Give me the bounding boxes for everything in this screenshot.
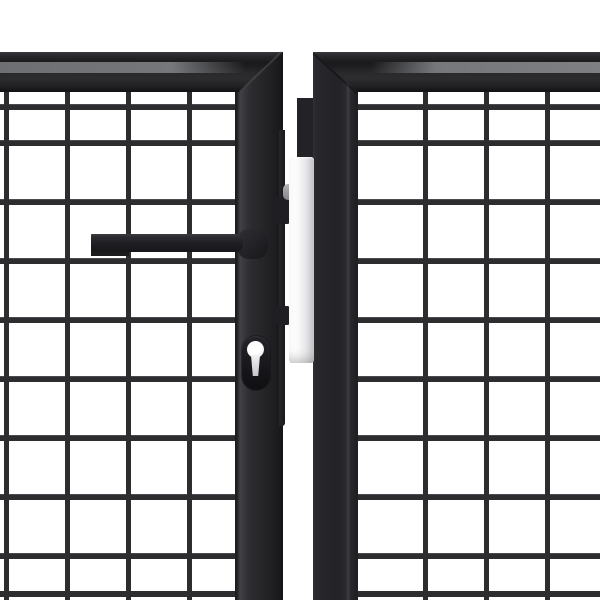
top-rail-highlight-left [0,62,246,73]
bottom-double-wire-right [358,591,600,597]
bottom-double-wire-left [0,591,235,597]
top-rail-right [313,52,600,92]
right-gate-stile [313,52,358,600]
strike-plate [289,157,314,363]
lever-handle [91,234,243,252]
strike-mount-block [297,98,313,159]
wire-mesh-right [358,92,600,600]
left-gate-stile [235,52,283,600]
wire-mesh-left [0,92,235,600]
product-photo [0,0,600,600]
lock-case-edge [279,130,285,426]
top-rail-left [0,52,282,92]
top-rail-highlight-right [371,62,600,73]
